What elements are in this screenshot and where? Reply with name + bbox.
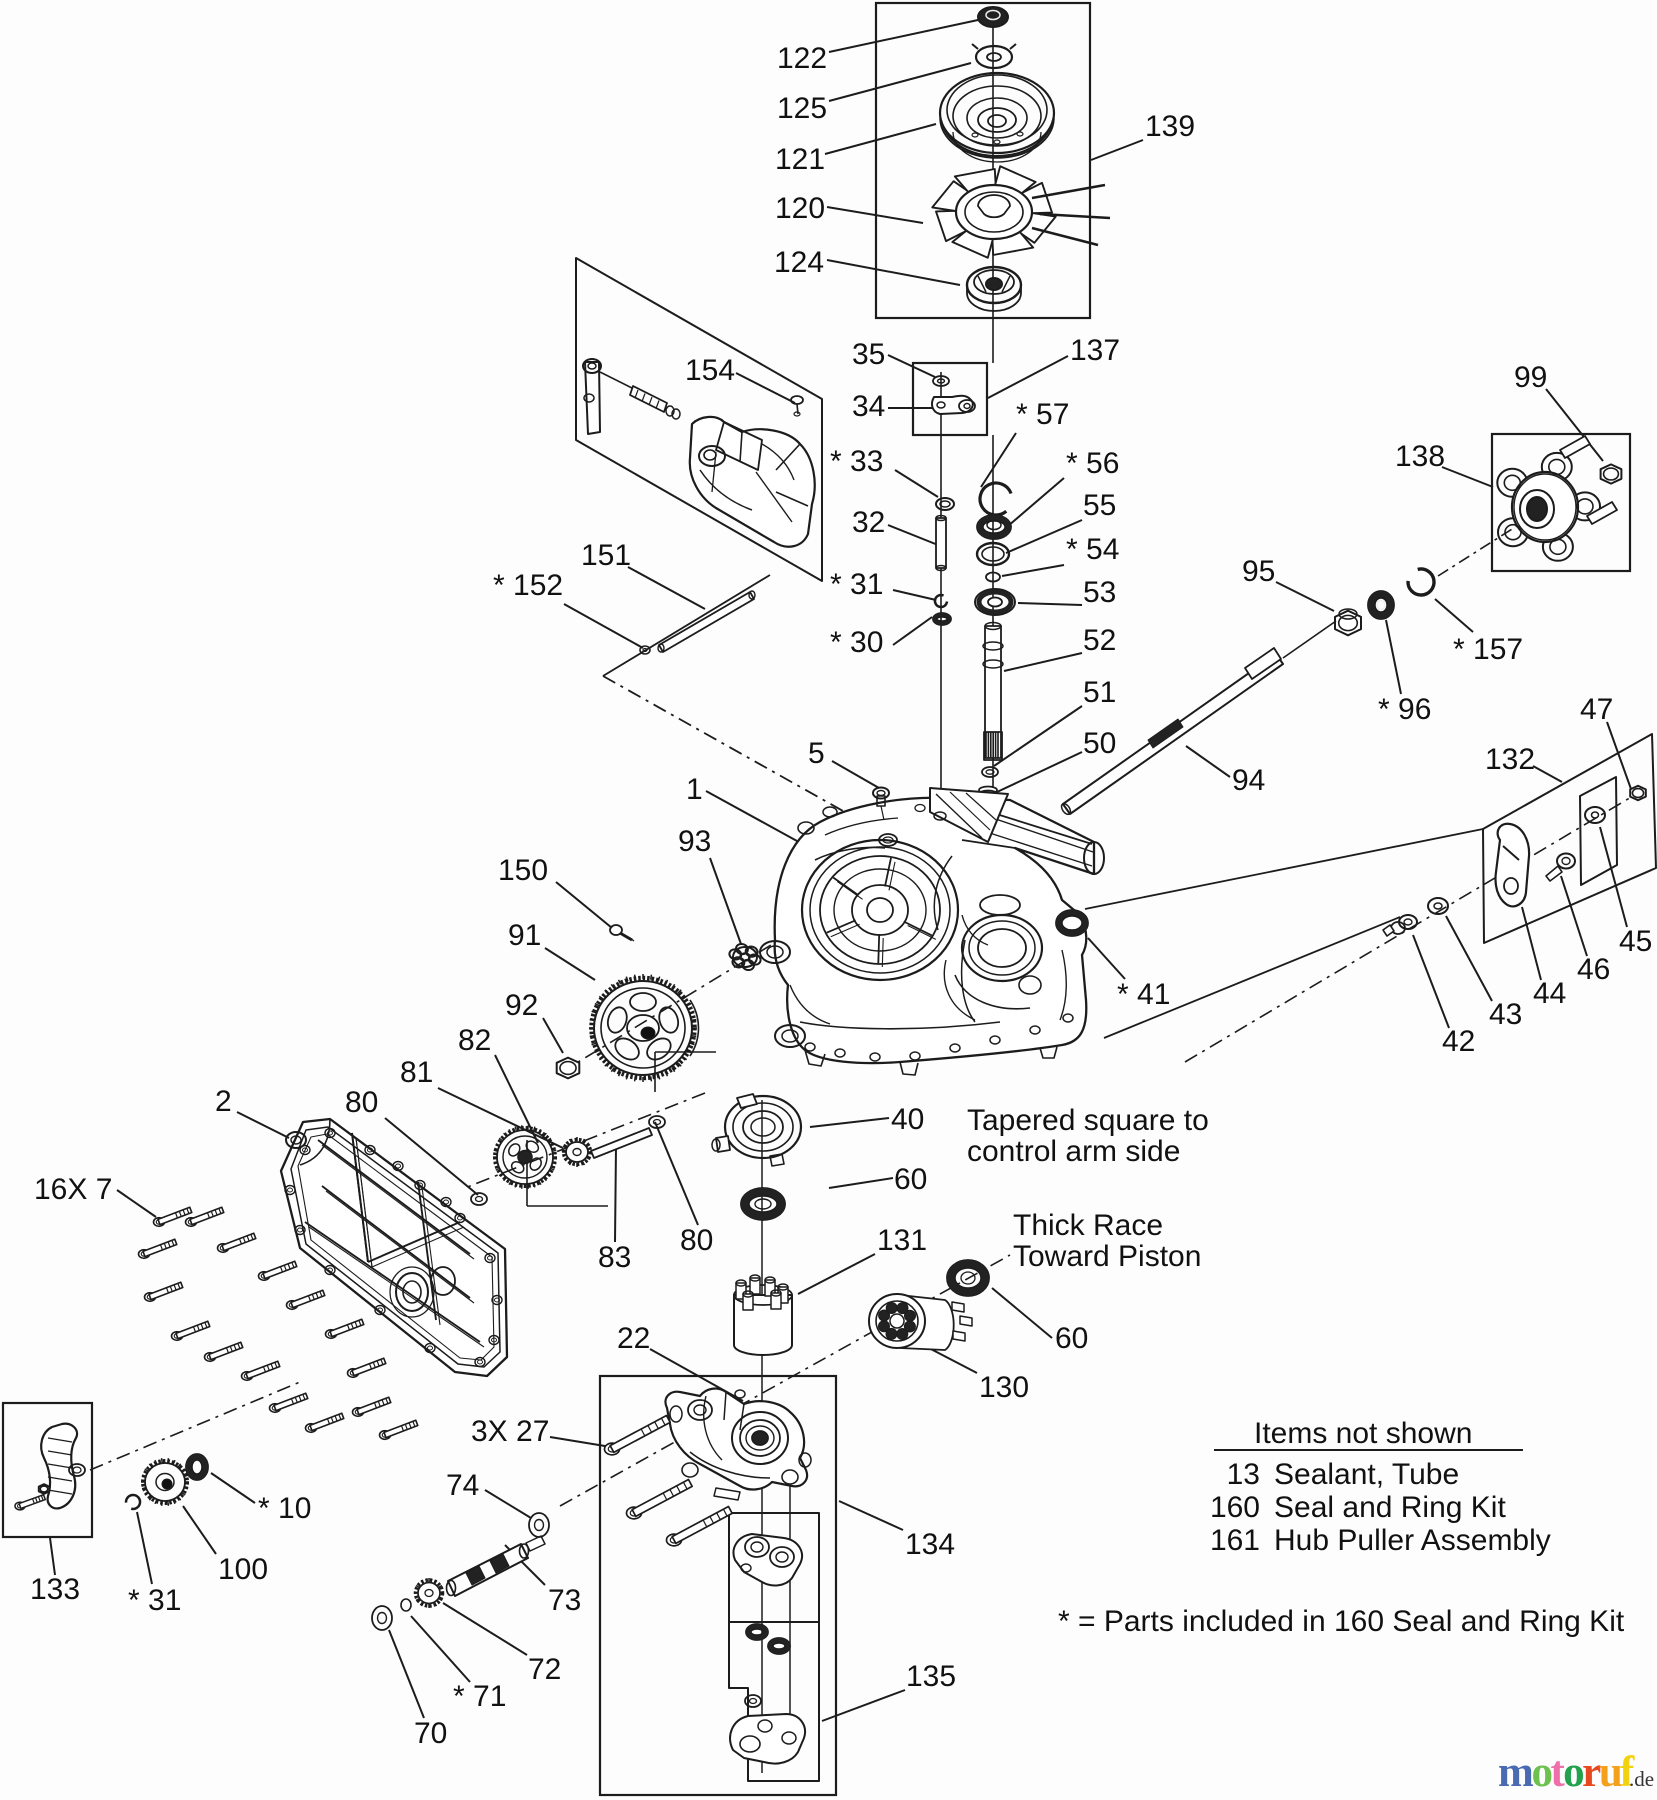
svg-text:* 54: * 54 <box>1066 533 1119 566</box>
svg-text:73: 73 <box>548 1584 581 1617</box>
svg-text:80: 80 <box>680 1224 713 1257</box>
svg-text:52: 52 <box>1083 624 1116 657</box>
svg-text:* 33: * 33 <box>830 445 883 478</box>
svg-text:137: 137 <box>1070 334 1120 367</box>
svg-text:134: 134 <box>905 1528 955 1561</box>
svg-text:45: 45 <box>1619 925 1652 958</box>
svg-text:16X 7: 16X 7 <box>34 1173 112 1206</box>
svg-text:83: 83 <box>598 1241 631 1274</box>
svg-text:Seal and Ring Kit: Seal and Ring Kit <box>1274 1491 1506 1524</box>
svg-text:50: 50 <box>1083 727 1116 760</box>
svg-text:132: 132 <box>1485 743 1535 776</box>
svg-text:100: 100 <box>218 1553 268 1586</box>
svg-text:92: 92 <box>505 989 538 1022</box>
svg-text:* 56: * 56 <box>1066 447 1119 480</box>
svg-text:133: 133 <box>30 1573 80 1606</box>
svg-text:138: 138 <box>1395 440 1445 473</box>
svg-text:154: 154 <box>685 354 735 387</box>
svg-text:5: 5 <box>808 737 825 770</box>
svg-text:121: 121 <box>775 143 825 176</box>
svg-text:* 41: * 41 <box>1117 978 1170 1011</box>
svg-text:160: 160 <box>1210 1491 1260 1524</box>
svg-text:22: 22 <box>617 1322 650 1355</box>
svg-text:93: 93 <box>678 825 711 858</box>
svg-text:122: 122 <box>777 42 827 75</box>
svg-text:* 31: * 31 <box>128 1584 181 1617</box>
svg-text:47: 47 <box>1580 693 1613 726</box>
svg-text:44: 44 <box>1533 977 1566 1010</box>
svg-text:135: 135 <box>906 1660 956 1693</box>
svg-text:124: 124 <box>774 246 824 279</box>
svg-text:34: 34 <box>852 390 885 423</box>
svg-text:53: 53 <box>1083 576 1116 609</box>
svg-text:* = Parts included in 160 Seal: * = Parts included in 160 Seal and Ring … <box>1058 1605 1625 1638</box>
svg-text:* 157: * 157 <box>1453 633 1523 666</box>
svg-text:46: 46 <box>1577 953 1610 986</box>
svg-text:13: 13 <box>1227 1458 1260 1491</box>
svg-text:* 30: * 30 <box>830 626 883 659</box>
svg-text:43: 43 <box>1489 998 1522 1031</box>
svg-text:Hub Puller Assembly: Hub Puller Assembly <box>1274 1524 1551 1557</box>
svg-text:60: 60 <box>1055 1322 1088 1355</box>
svg-text:74: 74 <box>446 1469 479 1502</box>
svg-text:2: 2 <box>215 1085 232 1118</box>
svg-text:Thick Race: Thick Race <box>1013 1209 1163 1242</box>
svg-text:125: 125 <box>777 92 827 125</box>
svg-text:72: 72 <box>528 1653 561 1686</box>
svg-text:Items not shown: Items not shown <box>1254 1417 1472 1450</box>
svg-text:Toward Piston: Toward Piston <box>1013 1240 1201 1273</box>
svg-text:161: 161 <box>1210 1524 1260 1557</box>
svg-text:81: 81 <box>400 1056 433 1089</box>
svg-text:* 96: * 96 <box>1378 693 1431 726</box>
svg-text:82: 82 <box>458 1024 491 1057</box>
svg-text:94: 94 <box>1232 764 1265 797</box>
svg-text:80: 80 <box>345 1086 378 1119</box>
svg-text:32: 32 <box>852 506 885 539</box>
svg-text:m: m <box>1498 1749 1534 1796</box>
svg-text:95: 95 <box>1242 555 1275 588</box>
svg-text:Sealant, Tube: Sealant, Tube <box>1274 1458 1459 1491</box>
svg-text:91: 91 <box>508 919 541 952</box>
svg-text:1: 1 <box>686 773 703 806</box>
svg-text:40: 40 <box>891 1103 924 1136</box>
svg-text:99: 99 <box>1514 361 1547 394</box>
svg-text:3X 27: 3X 27 <box>471 1415 549 1448</box>
svg-text:120: 120 <box>775 192 825 225</box>
svg-text:* 10: * 10 <box>258 1492 311 1525</box>
svg-text:35: 35 <box>852 338 885 371</box>
svg-text:150: 150 <box>498 854 548 887</box>
svg-text:.de: .de <box>1629 1767 1654 1791</box>
svg-text:70: 70 <box>414 1717 447 1750</box>
svg-text:* 31: * 31 <box>830 568 883 601</box>
svg-text:131: 131 <box>877 1224 927 1257</box>
svg-text:151: 151 <box>581 539 631 572</box>
svg-text:* 71: * 71 <box>453 1680 506 1713</box>
svg-text:control arm side: control arm side <box>967 1135 1180 1168</box>
svg-text:55: 55 <box>1083 489 1116 522</box>
svg-text:42: 42 <box>1442 1025 1475 1058</box>
svg-text:* 57: * 57 <box>1016 398 1069 431</box>
svg-text:60: 60 <box>894 1163 927 1196</box>
svg-text:130: 130 <box>979 1371 1029 1404</box>
svg-text:Tapered square to: Tapered square to <box>967 1104 1209 1137</box>
svg-text:* 152: * 152 <box>493 569 563 602</box>
svg-text:139: 139 <box>1145 110 1195 143</box>
svg-text:51: 51 <box>1083 676 1116 709</box>
